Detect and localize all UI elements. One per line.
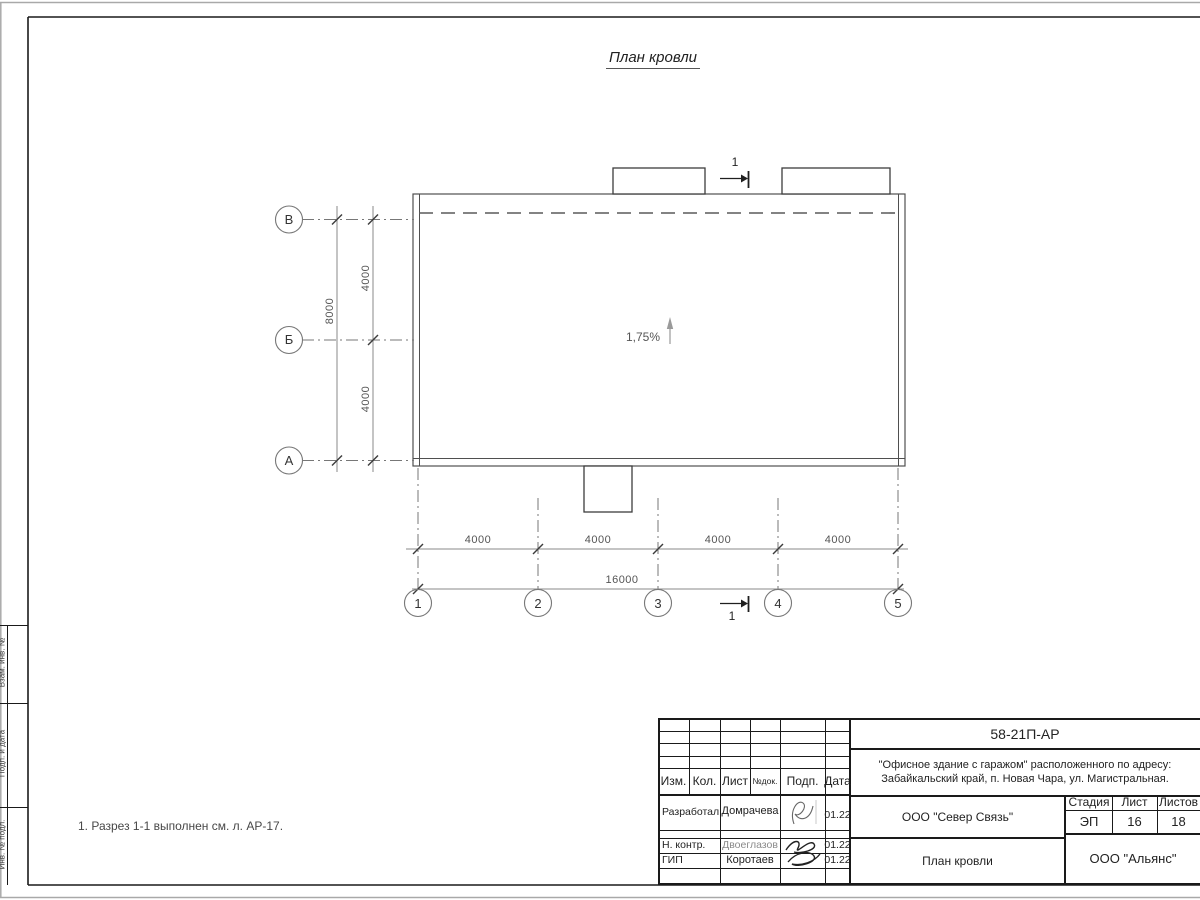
col-header-ndok: №док.	[750, 768, 780, 794]
sheets-value: 18	[1157, 810, 1200, 833]
section-bottom-label: 1	[726, 609, 738, 623]
project-line1: "Офисное здание с гаражом" расположенног…	[879, 759, 1172, 772]
row2-date: 01.22	[825, 838, 850, 853]
row3-date: 01.22	[825, 853, 850, 868]
row1-role: Разработал	[658, 794, 720, 830]
dim-left-total: 8000	[324, 281, 336, 341]
dim-left-1: 4000	[360, 248, 372, 308]
drawing-sheet: План кровли 1,75% 1 1 В Б А 1 2 3 4 5 40…	[0, 0, 1200, 900]
row1-date: 01.22	[825, 800, 850, 830]
section-arrow-top-icon	[741, 175, 748, 183]
project-line2: Забайкальский край, п. Новая Чара, ул. М…	[881, 773, 1169, 786]
stage-label: Стадия	[1066, 795, 1112, 810]
doc-number: 58-21П-АР	[850, 720, 1200, 748]
stage-value: ЭП	[1066, 810, 1112, 833]
signature-1	[782, 796, 825, 829]
axis-label-2: 2	[524, 596, 552, 611]
row1-name: Домрачева	[720, 794, 780, 830]
sheet-title: План кровли	[850, 839, 1065, 883]
dim-bottom-1: 4000	[448, 534, 508, 546]
signature-2	[780, 836, 825, 870]
sheets-label: Листов	[1157, 795, 1200, 810]
title-block: Изм. Кол. Лист №док. Подп. Дата Разработ…	[658, 718, 1200, 885]
side-stamp-label-2: Подп. и дата	[0, 702, 7, 806]
sheet-value: 16	[1112, 810, 1157, 833]
section-arrow-bottom-icon	[741, 600, 748, 608]
axis-label-3: 3	[644, 596, 672, 611]
company-name: ООО "Альянс"	[1066, 835, 1200, 883]
axis-label-5: 5	[884, 596, 912, 611]
slope-label: 1,75%	[626, 330, 660, 344]
section-top-label: 1	[729, 155, 741, 169]
col-header-list: Лист	[720, 768, 750, 794]
row3-name: Коротаев	[720, 853, 780, 868]
page-title-text: План кровли	[606, 49, 700, 69]
row3-role: ГИП	[658, 853, 720, 868]
org-name: ООО "Север Связь"	[850, 797, 1065, 837]
dim-left-2: 4000	[360, 369, 372, 429]
axis-label-b: Б	[276, 332, 302, 347]
col-header-podp: Подп.	[780, 768, 825, 794]
bottom-box	[584, 466, 632, 512]
axis-label-4: 4	[764, 596, 792, 611]
page-title: План кровли	[570, 49, 736, 69]
dim-bottom-3: 4000	[688, 534, 748, 546]
dim-bottom-2: 4000	[568, 534, 628, 546]
rooftop-box-right	[782, 168, 890, 194]
dim-bottom-total: 16000	[592, 574, 652, 586]
col-header-kol: Кол.	[689, 768, 720, 794]
drawing-note: 1. Разрез 1-1 выполнен см. л. АР-17.	[78, 819, 283, 833]
project-description: "Офисное здание с гаражом" расположенног…	[850, 750, 1200, 795]
dimension-lines	[337, 206, 908, 589]
side-stamp-label-1: Взам. инв. №	[0, 624, 7, 702]
dim-bottom-4: 4000	[808, 534, 868, 546]
sheet-label: Лист	[1112, 795, 1157, 810]
col-header-izm: Изм.	[658, 768, 689, 794]
axis-label-1: 1	[404, 596, 432, 611]
axis-label-a: А	[276, 453, 302, 468]
row2-name: Двоеглазов	[720, 838, 780, 853]
axis-label-v: В	[276, 212, 302, 227]
rooftop-box-left	[613, 168, 705, 194]
row2-role: Н. контр.	[658, 838, 720, 853]
section-mark-top	[720, 171, 749, 188]
col-header-data: Дата	[825, 768, 850, 794]
slope-arrow-icon	[667, 317, 673, 344]
side-stamp-label-3: Инв. № подл.	[0, 806, 7, 884]
